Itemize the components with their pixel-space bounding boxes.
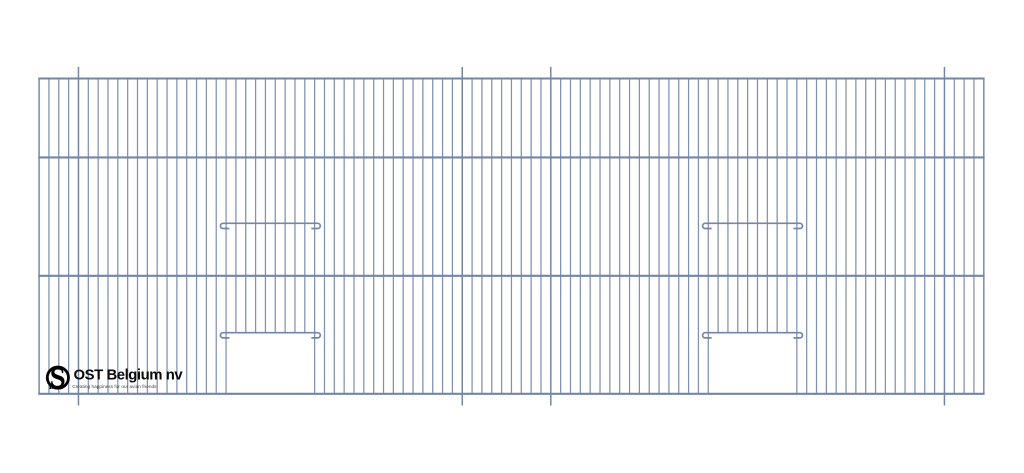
- svg-text:OST Belgium nv: OST Belgium nv: [74, 368, 184, 384]
- svg-text:Creating happiness for our avi: Creating happiness for our avian friends: [72, 384, 157, 389]
- svg-text:D: D: [49, 382, 55, 391]
